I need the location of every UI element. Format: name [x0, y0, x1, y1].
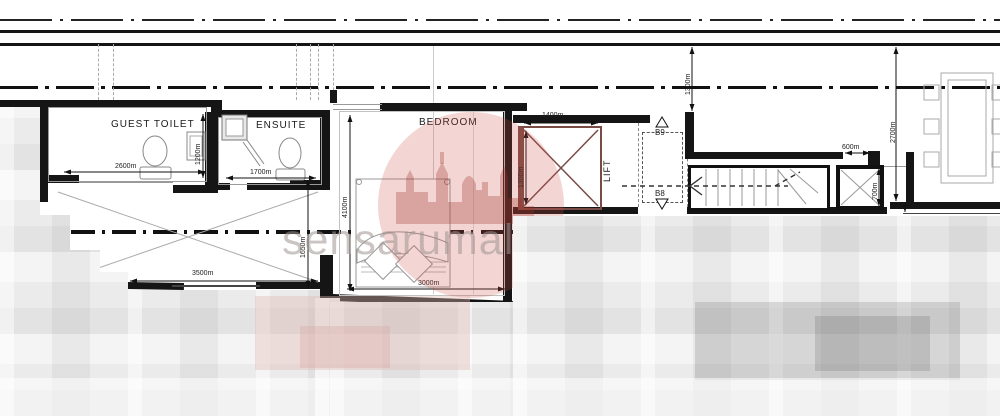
- marker-b9-triangle: [656, 117, 668, 127]
- dim-ensuite-width: 1700m: [250, 169, 271, 176]
- blur-patch-light: [0, 378, 1000, 416]
- chair: [924, 152, 939, 167]
- room-label-ensuite: ENSUITE: [256, 120, 306, 131]
- dim-shaft-depth: 700m: [872, 182, 879, 200]
- chair: [924, 85, 939, 100]
- dim-guest-toilet-width: 2600m: [115, 163, 136, 170]
- marker-b8-label: B8: [655, 189, 665, 198]
- stair-walk-line: [622, 172, 800, 195]
- room-label-lift: LIFT: [602, 159, 612, 182]
- dim-corridor-width: 3500m: [192, 270, 213, 277]
- dim-right-bay-depth: 2700m: [890, 122, 897, 143]
- chair: [924, 119, 939, 134]
- dining-table: [924, 73, 1000, 183]
- toilet-fixture: [140, 136, 171, 179]
- marker-b8-triangle: [656, 199, 668, 209]
- room-label-guest-toilet: GUEST TOILET: [111, 119, 195, 130]
- blur-patch-dark: [815, 316, 930, 371]
- toilet-fixture: [276, 138, 305, 180]
- dim-shaft-width: 600m: [842, 144, 860, 151]
- skyline-silhouette: [396, 162, 546, 224]
- dim-guest-toilet-depth: 1200m: [195, 144, 202, 165]
- stair-treads: [706, 169, 818, 206]
- watermark-text: sensarumalta: [282, 216, 552, 265]
- floor-plan: sensarumalta: [0, 0, 1000, 416]
- skyline-tower: [440, 152, 444, 164]
- blur-patch-pink: [300, 326, 390, 368]
- dim-stair-bay-front: 1300m: [685, 74, 692, 95]
- marker-b9-label: B9: [655, 128, 665, 137]
- dim-bedroom-depth: 4100m: [342, 197, 349, 218]
